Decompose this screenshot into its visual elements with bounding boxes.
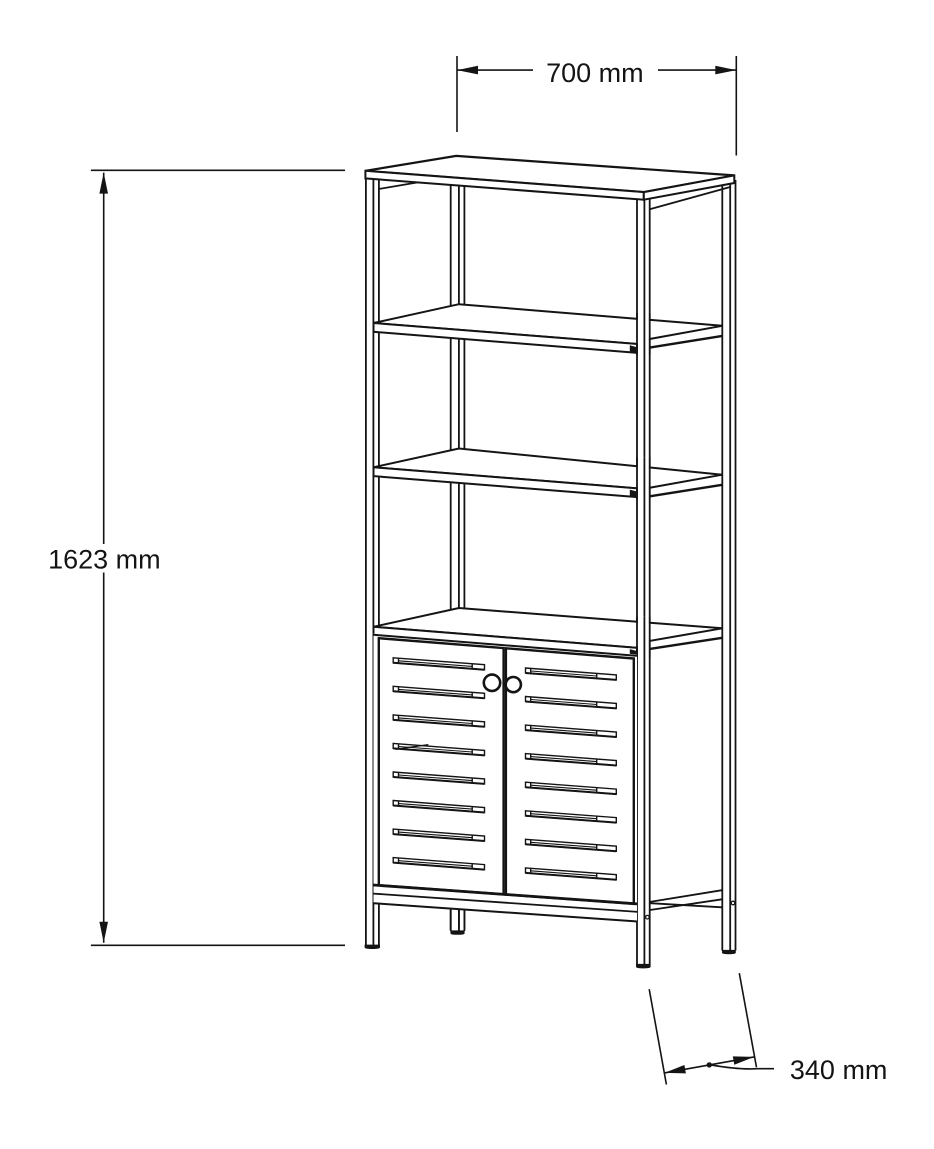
svg-text:340 mm: 340 mm <box>790 1055 888 1085</box>
svg-text:1623 mm: 1623 mm <box>48 545 161 575</box>
svg-text:700 mm: 700 mm <box>546 58 644 88</box>
